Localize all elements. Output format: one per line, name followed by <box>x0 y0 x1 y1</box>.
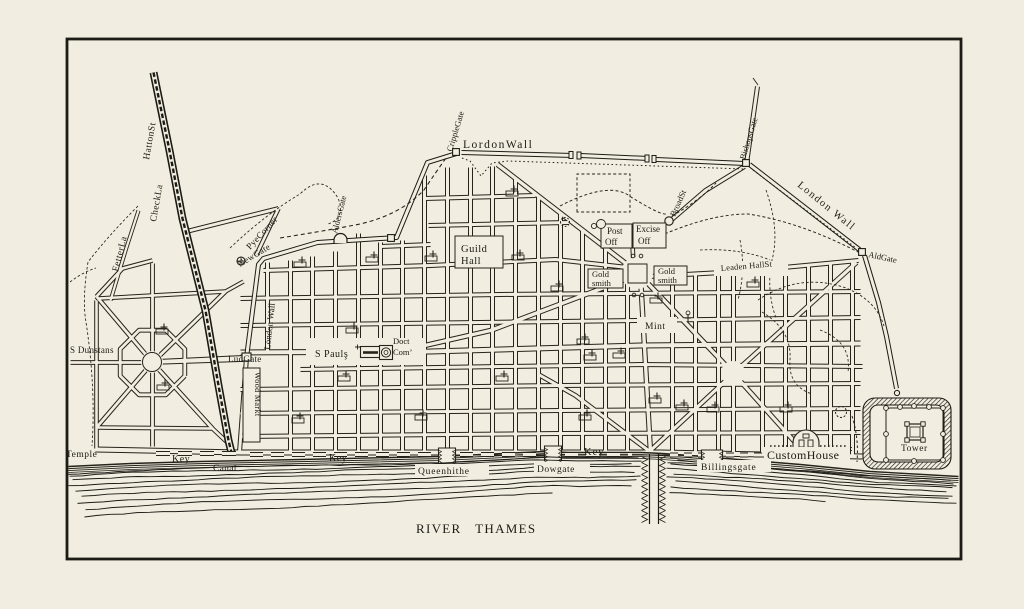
svg-text:Temple: Temple <box>66 450 97 460</box>
svg-text:Key: Key <box>584 447 605 458</box>
svg-text:Hall: Hall <box>461 256 481 267</box>
svg-text:Off: Off <box>638 236 650 246</box>
svg-text:Key: Key <box>172 454 190 465</box>
svg-text:CustomHouse: CustomHouse <box>767 448 839 462</box>
svg-text:Tower: Tower <box>901 444 928 454</box>
svg-text:Post: Post <box>607 226 623 236</box>
svg-text:Wood Markt: Wood Markt <box>253 372 262 417</box>
svg-text:smith: smith <box>592 278 612 288</box>
svg-text:Doct: Doct <box>393 336 410 346</box>
svg-text:Mint: Mint <box>645 322 665 332</box>
svg-text:Canal: Canal <box>213 464 237 474</box>
svg-text:LudGate: LudGate <box>228 354 262 364</box>
svg-text:Com’: Com’ <box>393 347 413 357</box>
svg-text:LordonWall: LordonWall <box>463 139 533 151</box>
svg-text:Off: Off <box>605 237 617 247</box>
svg-text:Guild: Guild <box>461 244 488 255</box>
svg-text:Queenhithe: Queenhithe <box>418 467 470 477</box>
svg-text:Dowgate: Dowgate <box>537 465 575 475</box>
svg-text:S Paulş: S Paulş <box>315 349 348 360</box>
svg-text:Excise: Excise <box>636 224 660 234</box>
svg-text:S Dunstans: S Dunstans <box>70 345 114 355</box>
svg-text:smith: smith <box>658 275 678 285</box>
svg-text:RIVER THAMES: RIVER THAMES <box>416 521 536 536</box>
svg-text:Key: Key <box>329 453 347 464</box>
svg-text:Billingsgate: Billingsgate <box>701 463 757 473</box>
